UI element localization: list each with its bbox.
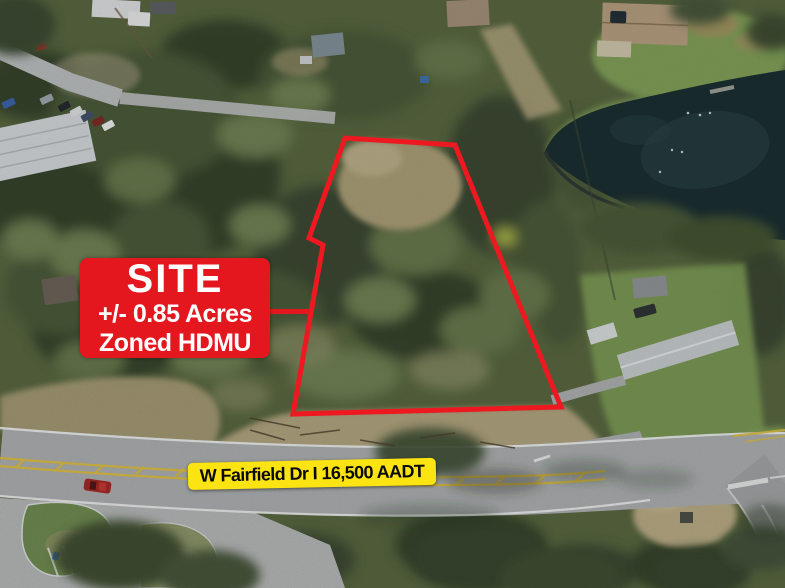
site-label-leader-line: [266, 309, 310, 314]
site-label: SITE +/- 0.85 Acres Zoned HDMU: [80, 258, 270, 358]
site-area: +/- 0.85 Acres: [98, 300, 252, 329]
road-traffic-banner: W Fairfield Dr I 16,500 AADT: [188, 458, 437, 490]
site-title: SITE: [127, 258, 224, 300]
site-zoning: Zoned HDMU: [99, 329, 251, 358]
aerial-listing-photo: SITE +/- 0.85 Acres Zoned HDMU W Fairfie…: [0, 0, 785, 588]
